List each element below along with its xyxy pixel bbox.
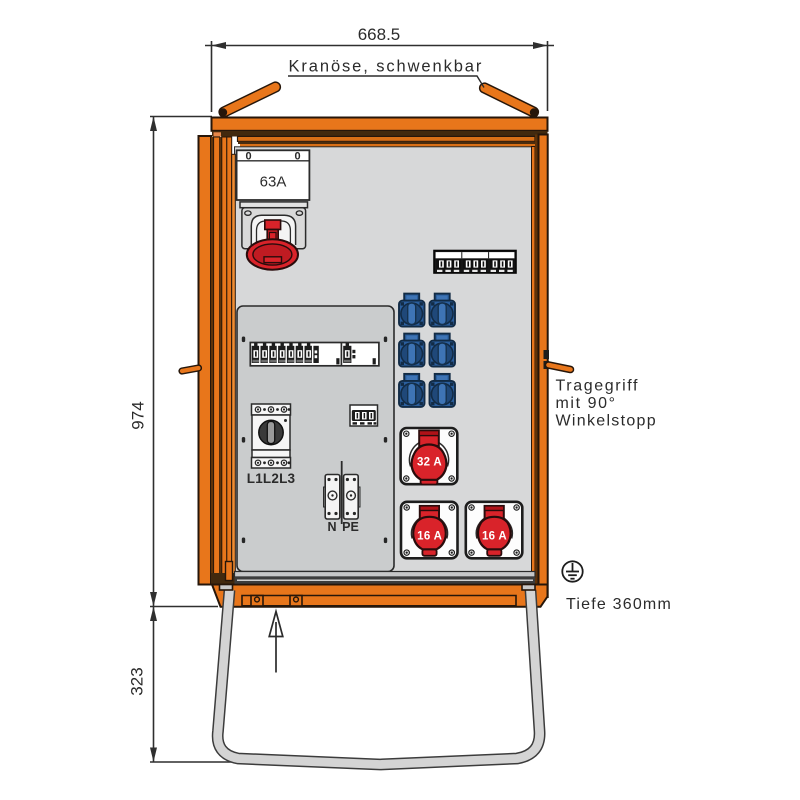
svg-text:32 A: 32 A — [417, 457, 442, 469]
svg-text:N: N — [327, 520, 336, 534]
svg-text:323: 323 — [128, 667, 147, 695]
svg-text:0: 0 — [245, 151, 251, 163]
svg-text:L1L2L3: L1L2L3 — [247, 471, 296, 486]
svg-text:PE: PE — [342, 520, 359, 534]
svg-text:Winkelstopp: Winkelstopp — [556, 413, 657, 430]
svg-text:16 A: 16 A — [482, 531, 507, 543]
svg-text:Kranöse, schwenkbar: Kranöse, schwenkbar — [289, 58, 484, 76]
svg-text:Tragegriff: Tragegriff — [556, 378, 640, 395]
svg-text:63A: 63A — [260, 174, 287, 191]
svg-text:668.5: 668.5 — [358, 25, 401, 44]
svg-text:Tiefe 360mm: Tiefe 360mm — [566, 596, 672, 613]
svg-text:974: 974 — [129, 401, 148, 429]
svg-text:mit 90°: mit 90° — [556, 395, 617, 412]
svg-text:16 A: 16 A — [417, 531, 442, 543]
svg-text:0: 0 — [294, 151, 300, 163]
